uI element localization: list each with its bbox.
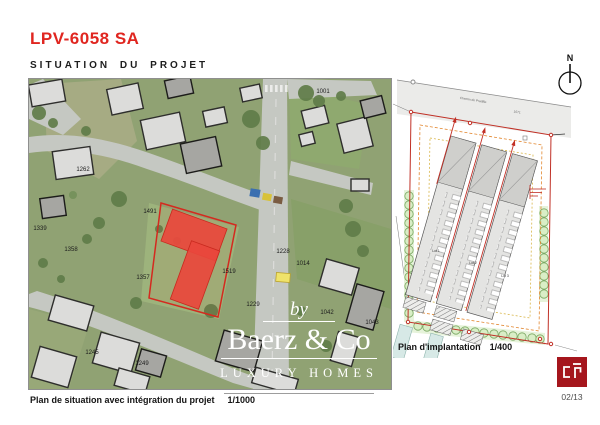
svg-text:Lot 3: Lot 3 (501, 274, 509, 278)
map-caption-text: Plan de situation avec intégration du pr… (30, 395, 215, 405)
svg-text:1043: 1043 (365, 320, 379, 326)
svg-text:1245: 1245 (85, 350, 99, 356)
page-number: 02/13 (555, 392, 589, 402)
svg-text:1262: 1262 (76, 167, 90, 173)
plan-caption-scale: 1/400 (490, 342, 513, 352)
map-caption-scale: 1/1000 (228, 395, 256, 405)
svg-text:1249: 1249 (135, 361, 149, 367)
svg-text:1358: 1358 (64, 247, 78, 253)
plan-caption-text: Plan d'implantation (398, 342, 481, 352)
svg-text:1339: 1339 (33, 226, 47, 232)
site-plan-svg: Lot 1Lot 2Lot 3 Chemin de Pradille1071 (393, 68, 578, 358)
svg-text:1228: 1228 (276, 249, 290, 255)
page-title: LPV-6058 SA (30, 29, 139, 49)
svg-text:1001: 1001 (316, 89, 330, 95)
map-caption: Plan de situation avec intégration du pr… (30, 395, 255, 405)
company-logo (557, 357, 587, 387)
svg-text:1491: 1491 (143, 209, 157, 215)
aerial-map-image: 1262100114911339135813571519122810141229… (28, 78, 392, 390)
svg-text:1357: 1357 (136, 275, 150, 281)
svg-text:1229: 1229 (246, 302, 260, 308)
svg-text:1014: 1014 (296, 261, 310, 267)
document-page: LPV-6058 SA SITUATION DU PROJET (0, 0, 600, 425)
site-plan-drawing: Lot 1Lot 2Lot 3 Chemin de Pradille1071 (393, 68, 578, 358)
svg-text:1042: 1042 (320, 310, 334, 316)
svg-text:Lot 1: Lot 1 (432, 249, 440, 253)
watermark-divider-bottom (224, 393, 374, 394)
north-label: N (567, 53, 574, 63)
aerial-map-svg: 1262100114911339135813571519122810141229… (29, 79, 391, 389)
plan-caption: Plan d'implantation1/400 (398, 342, 512, 352)
page-subtitle: SITUATION DU PROJET (30, 60, 208, 71)
plan-symbol-square (523, 136, 527, 140)
svg-text:Lot 2: Lot 2 (469, 261, 477, 265)
bus-stop-marking (276, 272, 291, 282)
svg-text:1519: 1519 (222, 269, 236, 275)
north-arrow-icon: N (552, 52, 588, 96)
